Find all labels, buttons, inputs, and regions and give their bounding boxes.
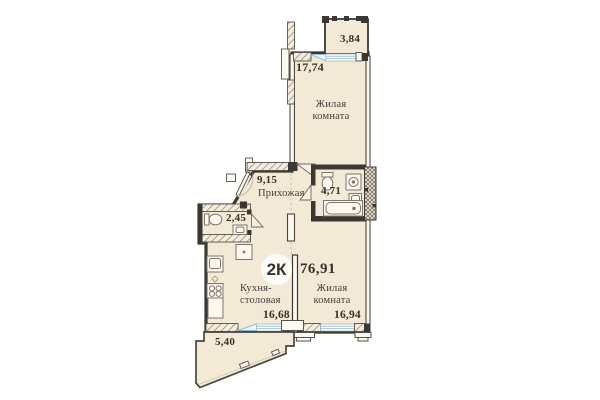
wall-corner <box>362 53 368 61</box>
facade-pilaster <box>282 49 290 79</box>
facade-bracket <box>358 338 368 342</box>
apartment-type-badge: 2К <box>261 254 292 285</box>
counter-icon <box>208 298 223 318</box>
kitchen-name-line2: столовая <box>240 295 281 306</box>
living-top-area-label: 17,74 <box>296 61 324 74</box>
sink-basin-icon <box>236 227 244 233</box>
balcony-outline <box>196 332 294 388</box>
left-wall <box>290 54 294 170</box>
kitchen-fixtures <box>207 256 223 318</box>
partition-stub-wall <box>288 214 295 241</box>
facade-bracket <box>297 338 311 342</box>
kitchen-name-line1: Кухня- <box>240 283 272 294</box>
bathroom-bottom-wall <box>311 216 366 222</box>
facade-bracket <box>355 333 371 338</box>
window-glazing <box>321 324 355 331</box>
appliance-dot-icon <box>243 251 246 254</box>
wall-junction-column <box>240 202 247 209</box>
bathroom-left-wall <box>311 201 316 218</box>
bathroom-area-label: 4,71 <box>321 185 341 197</box>
hallway-name-label: Прихожая <box>258 188 305 200</box>
washing-machine-dot-icon <box>352 181 354 183</box>
kitchen-sink-basin-icon <box>210 259 221 269</box>
apartment-type-label: 2К <box>267 260 287 280</box>
toilet-tank-icon <box>205 214 210 225</box>
corner-column <box>361 16 368 23</box>
toilet-tank-icon <box>322 173 333 178</box>
kitchen-area-label: 16,68 <box>263 309 290 322</box>
living-bottom-name-label: Жилая комната <box>304 283 360 307</box>
hatched-wall <box>247 163 291 171</box>
wall-post <box>356 53 362 62</box>
living-bottom-area-label: 16,94 <box>334 309 361 322</box>
facade-pier-hatched <box>288 80 295 104</box>
wc-wall-stub <box>247 210 252 215</box>
corner-column <box>322 16 329 23</box>
balcony-bottom <box>196 332 294 388</box>
glazing-post <box>332 16 337 21</box>
window-glazing <box>257 324 283 331</box>
facade-pier-hatched <box>288 22 295 49</box>
hallway-area-label: 9,15 <box>257 174 277 186</box>
loggia-top-area-label: 3,84 <box>340 33 360 45</box>
toilet-bowl-icon <box>209 214 222 225</box>
wc-left-wall <box>199 204 203 242</box>
hatched-wall <box>206 324 238 332</box>
entry-threshold <box>227 174 236 182</box>
vent-shaft-block <box>365 188 369 192</box>
glazing-post <box>356 16 361 21</box>
glazing-post <box>344 16 349 21</box>
window-glazing <box>326 54 356 61</box>
floorplan-canvas: 3,84 17,74 Жилая комната 9,15 Прихожая 4… <box>0 0 600 400</box>
hatched-wall <box>304 324 321 332</box>
wc-wall-stub <box>247 230 252 235</box>
bathroom-left-wall <box>311 165 316 186</box>
kitchen-name-label: Кухня- столовая <box>240 283 300 307</box>
hatched-wall <box>201 235 251 243</box>
vent-shaft-block <box>373 204 377 208</box>
total-area-label: 76,91 <box>300 261 336 278</box>
bathtub-drain-icon <box>353 207 355 209</box>
hatched-wall <box>355 324 365 332</box>
facade-bracket <box>293 333 315 338</box>
vent-shaft <box>365 167 377 220</box>
wc-area-label: 2,45 <box>226 212 246 224</box>
living-bottom-name-line2: комната <box>313 295 350 306</box>
living-bottom-name-line1: Жилая <box>317 283 348 294</box>
wall-junction-column <box>288 162 298 171</box>
living-top-name-line1: Жилая <box>316 99 347 110</box>
balcony-bottom-area-label: 5,40 <box>215 336 235 348</box>
window-sill <box>282 321 304 331</box>
living-top-name-line2: комната <box>312 111 349 122</box>
bathroom-top-wall <box>313 165 366 170</box>
wall-corner <box>364 324 371 333</box>
living-top-name-label: Жилая комната <box>303 99 359 123</box>
